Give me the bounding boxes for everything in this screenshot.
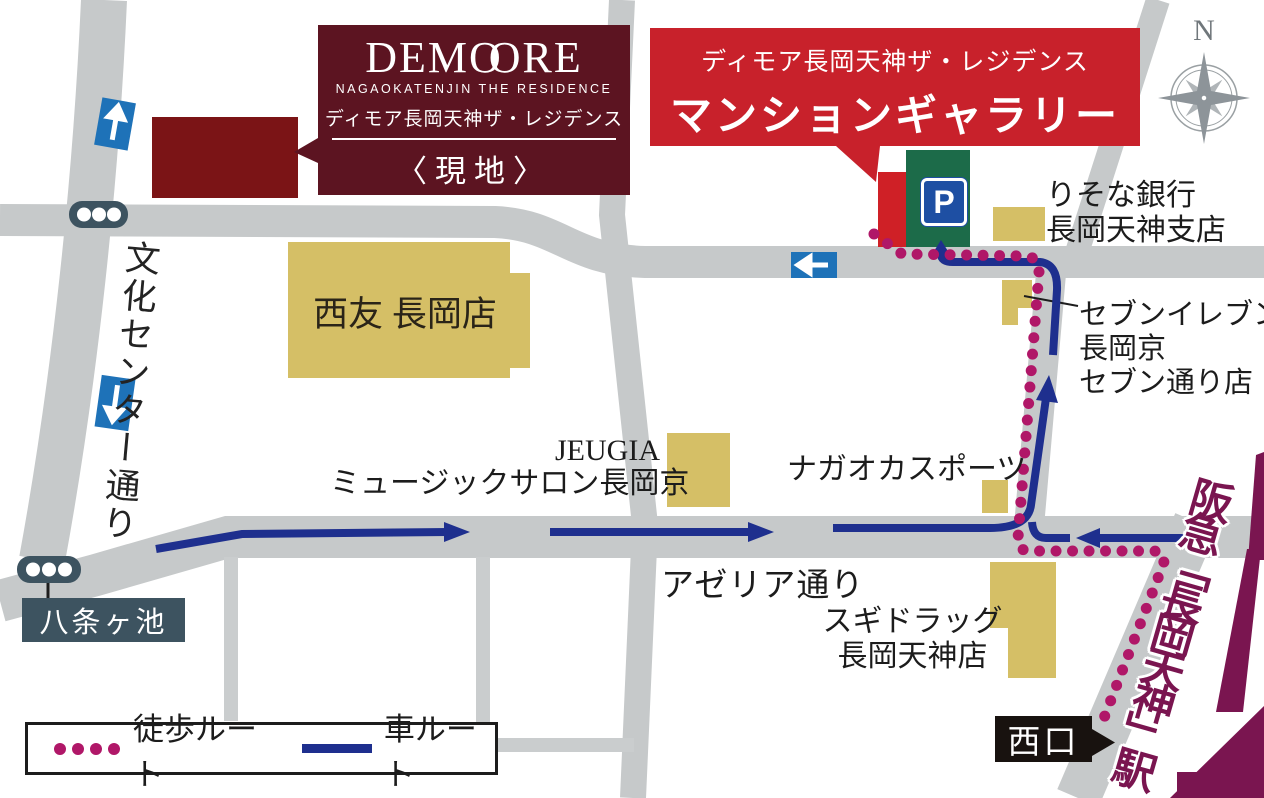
station-building-step xyxy=(1177,772,1207,798)
gallery-name-jp: ディモア長岡天神ザ・レジデンス xyxy=(701,42,1089,78)
label-risona-line1: りそな銀行 xyxy=(1046,178,1226,213)
legend-walk-dots-icon xyxy=(54,743,120,755)
demoore-site-banner: DEMOORE NAGAOKATENJIN THE RESIDENCE ディモア… xyxy=(318,25,630,195)
demoore-divider xyxy=(332,138,616,140)
label-seven-line3: セブン通り店 xyxy=(1079,366,1264,400)
label-risona-line2: 長岡天神支店 xyxy=(1046,213,1226,248)
building-seven-eleven xyxy=(1002,280,1032,325)
gallery-banner-pointer xyxy=(836,146,880,182)
legend-walk-label: 徒歩ルート xyxy=(133,704,272,794)
parking-sign: P xyxy=(921,178,967,226)
label-sugi-line2: 長岡天神店 xyxy=(785,639,1040,674)
gallery-title: マンションギャラリー xyxy=(670,82,1120,143)
label-azeria-street: アゼリア通り xyxy=(661,558,864,606)
label-jeugia-line2: ミュージックサロン長岡京 xyxy=(330,467,660,500)
label-sugi-line1: スギドラッグ xyxy=(785,604,1040,639)
legend-car-label: 車ルート xyxy=(384,704,495,794)
label-hachijogaike: 八条ヶ池 xyxy=(22,598,185,642)
building-risona-bank xyxy=(993,207,1045,241)
compass-rose xyxy=(1158,52,1250,144)
label-seiyu-store: 西友 長岡店 xyxy=(295,286,515,337)
demoore-name-jp: ディモア長岡天神ザ・レジデンス xyxy=(325,104,623,131)
label-seven-line1: セブンイレブン xyxy=(1079,298,1264,332)
legend-car-line-icon xyxy=(302,744,372,753)
route-legend: 徒歩ルート 車ルート xyxy=(25,722,498,775)
label-jeugia-line1: JEUGIA xyxy=(330,434,660,467)
label-seven-eleven: セブンイレブン 長岡京 セブン通り店 xyxy=(1079,298,1264,400)
access-map: DEMOORE NAGAOKATENJIN THE RESIDENCE ディモア… xyxy=(0,0,1264,798)
demoore-logo: DEMOORE xyxy=(365,35,583,81)
compass-north-label: N xyxy=(1184,14,1224,48)
gallery-banner: ディモア長岡天神ザ・レジデンス マンションギャラリー xyxy=(650,28,1140,146)
station-rail-strip xyxy=(1216,549,1261,712)
label-jeugia: JEUGIA ミュージックサロン長岡京 xyxy=(330,434,660,500)
building-site xyxy=(152,117,298,198)
label-risona-bank: りそな銀行 長岡天神支店 xyxy=(1046,178,1226,248)
demoore-logo-subtitle: NAGAOKATENJIN THE RESIDENCE xyxy=(336,82,613,96)
traffic-light-top-left xyxy=(69,201,128,228)
station-rail-strip-upper xyxy=(1248,452,1264,560)
site-label: 〈現地〉 xyxy=(396,146,552,191)
label-sugi-drug: スギドラッグ 長岡天神店 xyxy=(785,604,1040,674)
building-gallery-red xyxy=(878,172,906,247)
label-nagaoka-sports: ナガオカスポーツ xyxy=(787,444,1026,488)
one-way-sign-left xyxy=(791,252,837,278)
label-west-exit: 西口 xyxy=(995,716,1092,762)
label-seven-line2: 長岡京 xyxy=(1079,332,1264,366)
